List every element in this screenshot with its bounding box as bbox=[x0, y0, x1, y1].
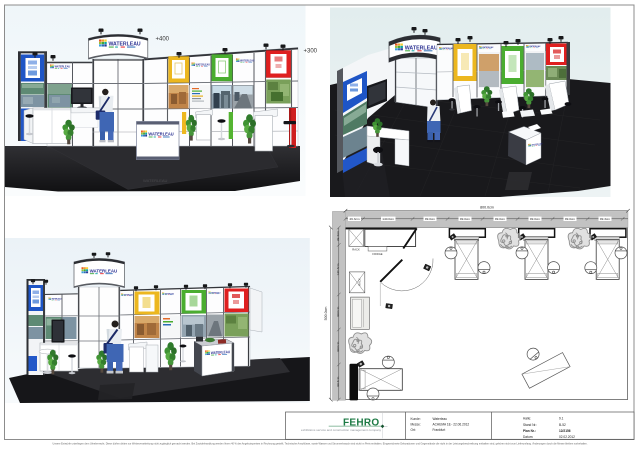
svg-text:02.02.2012: 02.02.2012 bbox=[559, 435, 575, 439]
svg-text:9.1: 9.1 bbox=[559, 416, 564, 420]
svg-text:RACK: RACK bbox=[352, 248, 360, 252]
svg-text:ACHEMA 18.- 22.06.2012: ACHEMA 18.- 22.06.2012 bbox=[433, 422, 470, 426]
svg-text:FEHRO: FEHRO bbox=[343, 417, 380, 428]
svg-text:+400: +400 bbox=[156, 37, 170, 43]
svg-text:Stand Nr.:: Stand Nr.: bbox=[523, 423, 537, 427]
svg-text:99.0cm: 99.0cm bbox=[495, 217, 506, 221]
svg-text:99.0cm: 99.0cm bbox=[336, 306, 340, 317]
svg-text:Messe:: Messe: bbox=[411, 422, 421, 426]
svg-text:99.0cm: 99.0cm bbox=[460, 217, 471, 221]
svg-text:140.0cm: 140.0cm bbox=[382, 217, 394, 221]
svg-text:49.3cm: 49.3cm bbox=[349, 217, 360, 221]
svg-text:12/2156: 12/2156 bbox=[559, 429, 571, 433]
svg-text:Waterleau: Waterleau bbox=[433, 417, 448, 421]
svg-text:99.0cm: 99.0cm bbox=[425, 217, 436, 221]
svg-text:WATERLEAU: WATERLEAU bbox=[143, 178, 168, 183]
svg-text:Ort:: Ort: bbox=[411, 428, 416, 432]
svg-text:99.0cm: 99.0cm bbox=[336, 341, 340, 352]
svg-text:800.0cm: 800.0cm bbox=[480, 206, 494, 210]
svg-text:99.0cm: 99.0cm bbox=[530, 217, 541, 221]
svg-text:+300: +300 bbox=[304, 49, 318, 55]
svg-text:B-52: B-52 bbox=[559, 423, 566, 427]
svg-text:Halle:: Halle: bbox=[523, 416, 531, 420]
svg-text:Frankfurt: Frankfurt bbox=[433, 428, 446, 432]
svg-text:Datum:: Datum: bbox=[523, 435, 533, 439]
svg-text:99.0cm: 99.0cm bbox=[565, 217, 576, 221]
svg-text:exhibitions service and constr: exhibitions service and construction man… bbox=[301, 428, 382, 432]
svg-text:99.3cm: 99.3cm bbox=[600, 217, 611, 221]
svg-text:FRIDGE: FRIDGE bbox=[372, 252, 382, 256]
svg-text:Kunde:: Kunde: bbox=[411, 417, 421, 421]
svg-text:140.3cm: 140.3cm bbox=[336, 263, 340, 275]
svg-text:Plan Nr.:: Plan Nr.: bbox=[523, 429, 536, 433]
svg-text:99.3cm: 99.3cm bbox=[336, 376, 340, 387]
svg-text:RACK: RACK bbox=[358, 278, 362, 286]
svg-text:Unsere Entwürfe unterliegen de: Unsere Entwürfe unterliegen dem Urheberr… bbox=[53, 441, 588, 445]
svg-text:500.0cm: 500.0cm bbox=[324, 307, 328, 321]
svg-text:49.3cm: 49.3cm bbox=[336, 231, 340, 242]
